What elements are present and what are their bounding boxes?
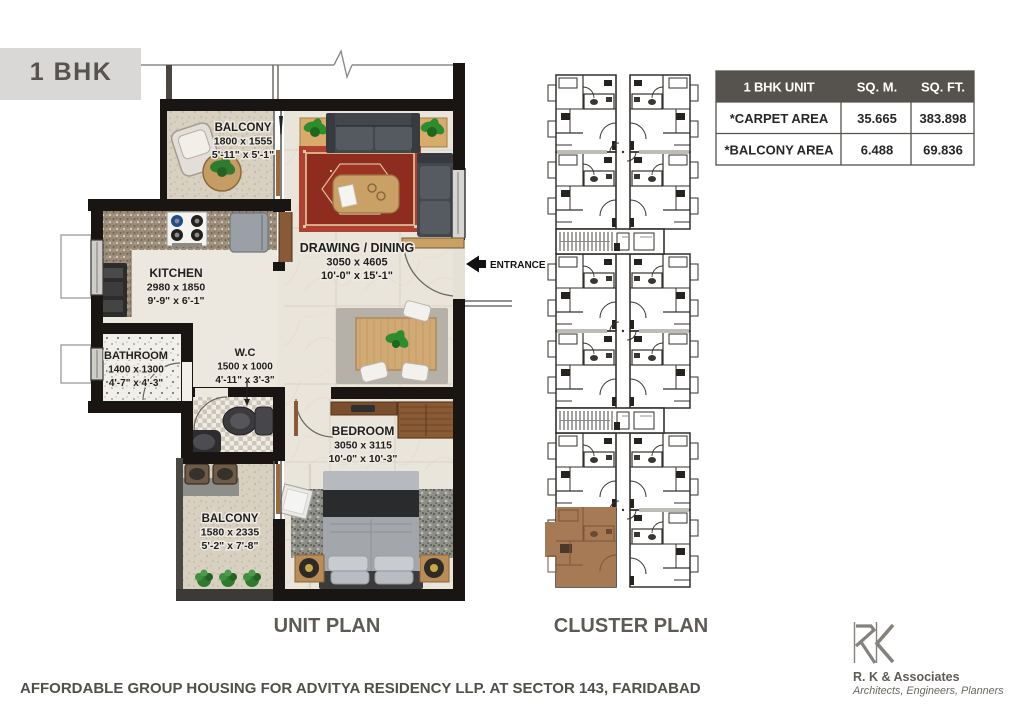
svg-text:1 BHK: 1 BHK: [30, 58, 113, 86]
svg-text:10'-0" x 10'-3": 10'-0" x 10'-3": [329, 453, 398, 465]
svg-text:CLUSTER PLAN: CLUSTER PLAN: [554, 615, 708, 637]
svg-text:3050 x 4605: 3050 x 4605: [326, 257, 387, 269]
svg-text:5'-11" x 5'-1": 5'-11" x 5'-1": [212, 149, 274, 161]
svg-text:BATHROOM: BATHROOM: [104, 350, 168, 362]
svg-text:Architects, Engineers, Planner: Architects, Engineers, Planners: [852, 685, 1004, 697]
svg-text:UNIT PLAN: UNIT PLAN: [274, 615, 381, 637]
svg-text:35.665: 35.665: [857, 111, 897, 126]
svg-text:69.836: 69.836: [923, 143, 963, 158]
svg-text:BALCONY: BALCONY: [215, 122, 272, 134]
svg-text:4'-7" x 4'-3": 4'-7" x 4'-3": [109, 378, 164, 389]
svg-text:DRAWING / DINING: DRAWING / DINING: [300, 241, 415, 255]
svg-text:1580 x 2335: 1580 x 2335: [201, 527, 260, 539]
svg-text:KITCHEN: KITCHEN: [149, 266, 202, 280]
svg-text:SQ. M.: SQ. M.: [857, 80, 897, 95]
svg-text:2980 x 1850: 2980 x 1850: [147, 282, 206, 294]
svg-text:AFFORDABLE GROUP HOUSING FOR A: AFFORDABLE GROUP HOUSING FOR ADVITYA RES…: [20, 680, 701, 697]
svg-text:BALCONY: BALCONY: [202, 513, 259, 525]
svg-text:ENTRANCE: ENTRANCE: [490, 260, 546, 271]
svg-text:*BALCONY AREA: *BALCONY AREA: [724, 143, 834, 158]
svg-text:*CARPET AREA: *CARPET AREA: [730, 111, 829, 126]
svg-text:W.C: W.C: [235, 347, 256, 359]
svg-text:9'-9" x 6'-1": 9'-9" x 6'-1": [148, 295, 205, 307]
svg-text:1 BHK UNIT: 1 BHK UNIT: [744, 80, 815, 95]
svg-text:R. K & Associates: R. K & Associates: [853, 670, 960, 684]
svg-text:5'-2" x 7'-8": 5'-2" x 7'-8": [202, 540, 259, 552]
svg-text:4'-11" x 3'-3": 4'-11" x 3'-3": [215, 375, 275, 386]
svg-text:1500 x 1000: 1500 x 1000: [217, 362, 273, 373]
svg-text:3050 x 3115: 3050 x 3115: [334, 440, 392, 452]
svg-text:1800 x 1555: 1800 x 1555: [214, 136, 273, 148]
svg-text:6.488: 6.488: [861, 143, 894, 158]
svg-text:1400 x 1300: 1400 x 1300: [108, 365, 164, 376]
svg-text:383.898: 383.898: [920, 111, 967, 126]
svg-text:BEDROOM: BEDROOM: [332, 424, 395, 438]
svg-text:SQ. FT.: SQ. FT.: [921, 80, 965, 95]
svg-text:10'-0" x 15'-1": 10'-0" x 15'-1": [321, 270, 393, 282]
